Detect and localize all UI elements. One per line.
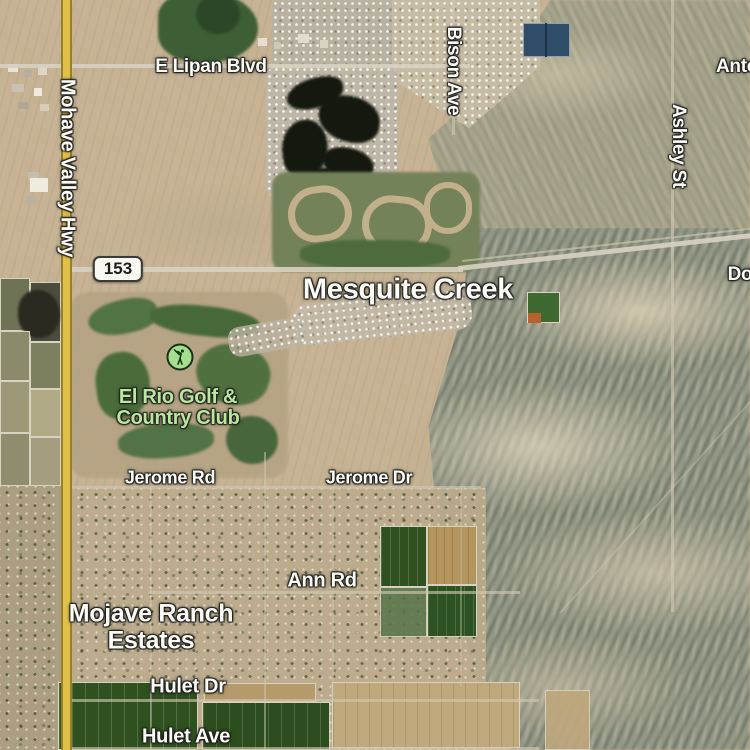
- locality-label-line2: Estates: [69, 627, 234, 654]
- building: [34, 88, 42, 96]
- road-hulet-dr: [61, 699, 539, 702]
- road-label-dome-partial: Do: [728, 265, 750, 285]
- building: [26, 196, 36, 204]
- poi-label-line2: Country Club: [116, 408, 239, 429]
- building: [298, 34, 309, 43]
- road-grid-vertical: [264, 452, 266, 750]
- poi-label-line1: El Rio Golf &: [116, 387, 239, 408]
- road-label-e-lipan-blvd: E Lipan Blvd: [155, 57, 266, 77]
- farm-field: [380, 526, 427, 587]
- farm-field: [545, 690, 590, 750]
- golfer-swing-icon: [171, 348, 190, 367]
- golf-poi-badge[interactable]: [167, 344, 194, 371]
- locality-label-line1: Mojave Ranch: [69, 601, 234, 628]
- building: [24, 70, 32, 77]
- building: [40, 104, 49, 111]
- building: [18, 102, 28, 109]
- farm-field: [30, 389, 61, 437]
- locality-label-mesquite-creek: Mesquite Creek: [303, 275, 513, 306]
- farm-field: [332, 682, 520, 748]
- route-shield-153: 153: [93, 256, 143, 282]
- road-label-mohave-valley-hwy: Mohave Valley Hwy: [56, 79, 77, 257]
- building: [30, 178, 48, 192]
- farm-field: [0, 381, 30, 433]
- road-label-ashley-st: Ashley St: [668, 104, 688, 188]
- road-label-jerome-rd: Jerome Rd: [125, 468, 215, 487]
- farm-field: [427, 526, 477, 585]
- road-grid-vertical: [460, 486, 462, 686]
- satellite-map-canvas[interactable]: Mohave Valley Hwy E Lipan Blvd Bison Ave…: [0, 0, 750, 750]
- farm-field: [0, 331, 30, 381]
- farm-field: [30, 437, 61, 486]
- road-ashley-st: [671, 0, 674, 612]
- terrain-scrub-bottom-left: [0, 486, 61, 750]
- golf-fairway: [300, 240, 450, 268]
- farm-field: [0, 433, 30, 486]
- road-label-hulet-ave: Hulet Ave: [142, 726, 230, 747]
- building: [12, 84, 24, 92]
- building: [258, 38, 267, 46]
- farm-field: [30, 342, 61, 389]
- road-label-jerome-dr: Jerome Dr: [326, 468, 412, 487]
- road-label-ann-rd: Ann Rd: [287, 570, 356, 591]
- road-label-bison-ave: Bison Ave: [443, 27, 463, 116]
- farm-field: [380, 587, 427, 637]
- sports-field-infield: [528, 313, 541, 323]
- poi-label-el-rio-golf[interactable]: El Rio Golf & Country Club: [116, 387, 239, 429]
- road-label-hulet-dr: Hulet Dr: [150, 676, 225, 697]
- road-label-antelope-partial: Anto: [716, 57, 750, 77]
- building: [320, 40, 328, 48]
- solar-pond-divider: [545, 23, 547, 57]
- locality-label-mojave-ranch-estates: Mojave Ranch Estates: [69, 601, 234, 654]
- building: [274, 42, 281, 49]
- golf-community-street-loop: [424, 182, 472, 234]
